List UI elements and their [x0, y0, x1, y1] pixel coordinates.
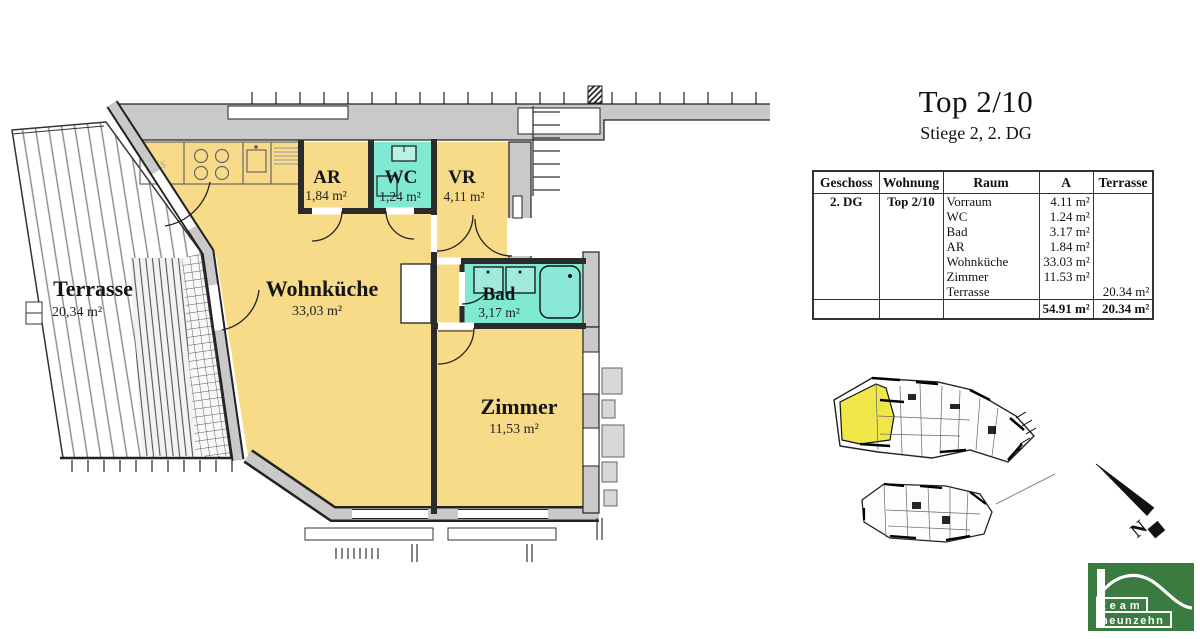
- key-plan-upper: [834, 378, 1036, 462]
- logo-line1: team: [1102, 600, 1144, 612]
- entrance-door-leaf: [513, 196, 522, 218]
- hall-strip: [437, 261, 462, 326]
- area-terrasse: 20,34 m²: [52, 305, 102, 320]
- table-row: 2. DG Top 2/10 Vorraum 4.11 m²: [813, 194, 1153, 210]
- terrace-edge-ticks: [72, 460, 232, 472]
- table-row: WC 1.24 m²: [813, 209, 1153, 224]
- area-wohnkueche: 33,03 m²: [292, 304, 342, 319]
- col-geschoss: Geschoss: [813, 171, 879, 194]
- shower: [540, 266, 580, 318]
- label-wohnkueche: Wohnküche: [266, 276, 379, 301]
- utility-closet: [401, 264, 431, 323]
- floorplan-sheet: KS: [0, 0, 1200, 639]
- window-east: [583, 352, 599, 394]
- table-totals-row: 54.91 m² 20.34 m²: [813, 300, 1153, 320]
- window-sill: [305, 528, 433, 540]
- floor-plan: KS: [0, 0, 770, 639]
- table-row: Wohnküche 33.03 m²: [813, 254, 1153, 269]
- neighbour-fixtures: [602, 368, 624, 506]
- key-plan-lower: [862, 474, 1055, 542]
- table-row: Terrasse 20.34 m²: [813, 284, 1153, 300]
- label-terrasse: Terrasse: [53, 276, 133, 301]
- page-subtitle: Stiege 2, 2. DG: [808, 123, 1144, 144]
- area-wc: 1,24 m²: [379, 189, 421, 204]
- dimension-ticks-top: [252, 92, 770, 104]
- col-terrasse: Terrasse: [1093, 171, 1153, 194]
- page-title: Top 2/10: [808, 84, 1144, 120]
- key-plans: N: [820, 360, 1200, 572]
- area-bad: 3,17 m²: [478, 305, 520, 320]
- title-block: Top 2/10 Stiege 2, 2. DG: [808, 84, 1144, 144]
- company-logo: team neunzehn: [1088, 563, 1194, 631]
- north-arrow: N: [1096, 464, 1165, 542]
- area-zimmer: 11,53 m²: [489, 422, 539, 437]
- col-wohnung: Wohnung: [879, 171, 943, 194]
- col-a: A: [1039, 171, 1093, 194]
- room-zimmer: [437, 329, 583, 511]
- area-ar: 1,84 m²: [305, 188, 347, 203]
- table-header-row: Geschoss Wohnung Raum A Terrasse: [813, 171, 1153, 194]
- label-ar: AR: [313, 167, 341, 188]
- label-bad: Bad: [483, 284, 516, 305]
- label-zimmer: Zimmer: [481, 394, 558, 419]
- total-area: 54.91 m²: [1039, 300, 1093, 320]
- area-vr: 4,11 m²: [443, 189, 484, 204]
- label-vr: VR: [448, 167, 476, 188]
- total-terrasse: 20.34 m²: [1093, 300, 1153, 320]
- col-raum: Raum: [943, 171, 1039, 194]
- entrance-opening: [507, 218, 533, 256]
- table-row: Zimmer 11.53 m²: [813, 269, 1153, 284]
- table-row: Bad 3.17 m²: [813, 224, 1153, 239]
- label-wc: WC: [385, 167, 418, 188]
- window-sill: [448, 528, 556, 540]
- area-table: Geschoss Wohnung Raum A Terrasse 2. DG T…: [812, 170, 1154, 320]
- table-row: AR 1.84 m²: [813, 239, 1153, 254]
- window-east: [583, 428, 599, 466]
- logo-line2: neunzehn: [1101, 615, 1164, 627]
